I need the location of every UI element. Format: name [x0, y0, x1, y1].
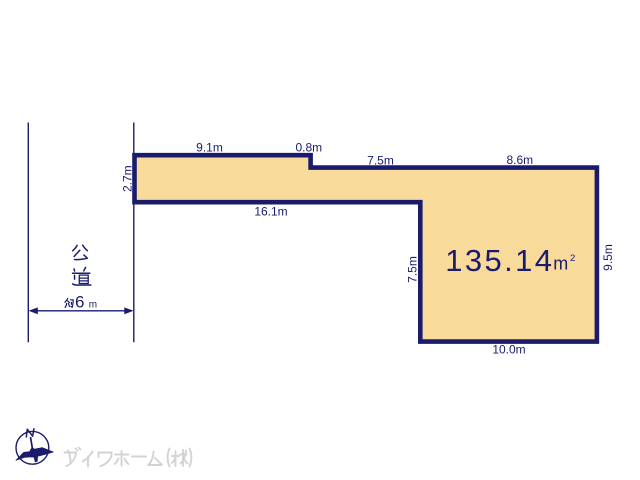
- svg-text:6: 6: [75, 292, 84, 311]
- svg-text:9.1m: 9.1m: [196, 140, 223, 154]
- svg-text:0.8m: 0.8m: [295, 140, 322, 154]
- svg-text:7.5m: 7.5m: [367, 153, 394, 167]
- svg-text:7.5m: 7.5m: [406, 256, 420, 283]
- svg-text:9.5m: 9.5m: [601, 244, 615, 271]
- svg-text:135.14: 135.14: [445, 243, 554, 278]
- svg-text:m: m: [553, 254, 568, 274]
- svg-text:2.7m: 2.7m: [120, 165, 134, 192]
- svg-text:10.0m: 10.0m: [492, 343, 525, 357]
- svg-text:16.1m: 16.1m: [254, 205, 287, 219]
- svg-text:2: 2: [570, 253, 575, 264]
- svg-text:m: m: [89, 299, 97, 310]
- svg-text:8.6m: 8.6m: [506, 153, 533, 167]
